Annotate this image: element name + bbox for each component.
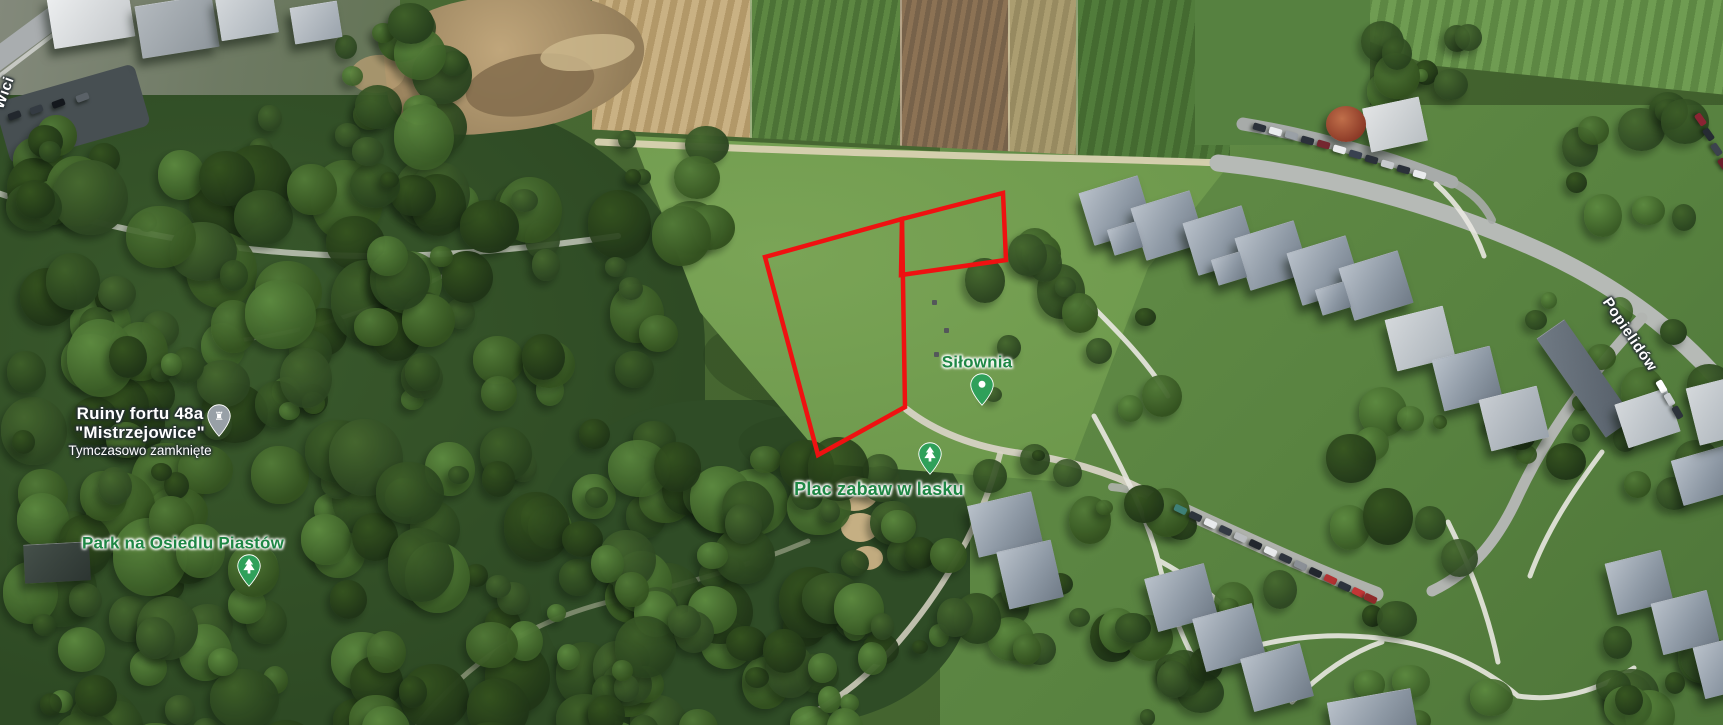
rook-pin-icon[interactable]: ♜ bbox=[207, 404, 231, 437]
fort-label[interactable]: Ruiny fortu 48a "Mistrzejowice" Tymczaso… bbox=[68, 404, 211, 458]
fort-status: Tymczasowo zamknięte bbox=[68, 443, 211, 458]
satellite-map-canvas[interactable]: Ruiny fortu 48a "Mistrzejowice" Tymczaso… bbox=[0, 0, 1723, 725]
fort-name-line1: Ruiny fortu 48a bbox=[68, 404, 211, 423]
boundary-polygon bbox=[765, 219, 905, 455]
svg-text:♜: ♜ bbox=[214, 410, 224, 423]
park-label[interactable]: Park na Osiedlu Piastów bbox=[82, 533, 284, 552]
fort-name-line2: "Mistrzejowice" bbox=[68, 423, 211, 442]
boundary-polygon bbox=[901, 193, 1006, 275]
playground-label[interactable]: Plac zabaw w lasku bbox=[794, 479, 964, 499]
pine-tree-pin-icon[interactable] bbox=[918, 442, 942, 475]
property-boundary-overlay bbox=[0, 0, 1723, 725]
dot-pin-icon[interactable] bbox=[970, 373, 994, 406]
pine-tree-pin-icon[interactable] bbox=[237, 554, 261, 587]
gym-label[interactable]: Siłownia bbox=[942, 352, 1013, 371]
